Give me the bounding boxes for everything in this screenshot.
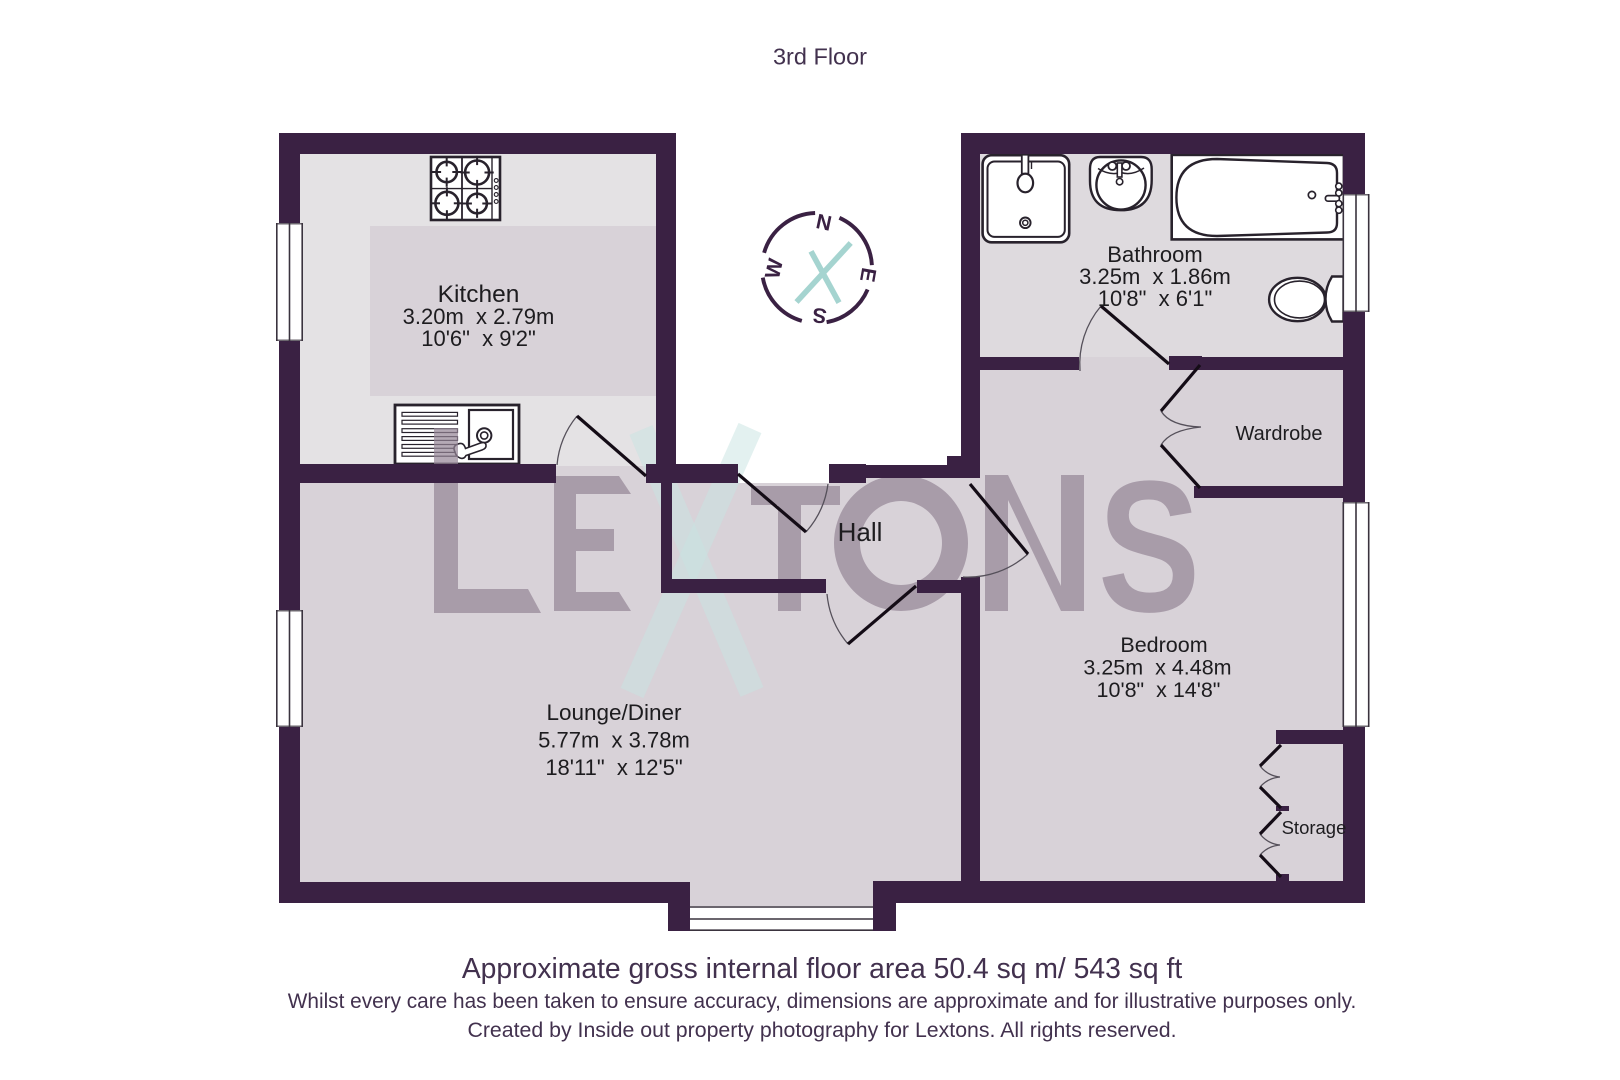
- svg-text:S: S: [811, 303, 828, 328]
- svg-text:3.25m x 4.48m: 3.25m x 4.48m: [1083, 656, 1231, 680]
- svg-text:3rd Floor: 3rd Floor: [773, 44, 867, 70]
- svg-text:W: W: [761, 256, 788, 281]
- svg-text:Created by Inside out property: Created by Inside out property photograp…: [467, 1018, 1176, 1042]
- svg-text:E: E: [855, 266, 880, 284]
- svg-text:S: S: [1098, 443, 1200, 652]
- svg-text:Storage: Storage: [1282, 817, 1347, 838]
- svg-text:10'6" x 9'2": 10'6" x 9'2": [421, 326, 536, 351]
- svg-text:10'8" x 14'8": 10'8" x 14'8": [1097, 678, 1221, 702]
- svg-text:Hall: Hall: [838, 517, 883, 547]
- svg-text:Wardrobe: Wardrobe: [1235, 423, 1322, 445]
- svg-text:Bedroom: Bedroom: [1120, 633, 1207, 657]
- svg-text:18'11" x 12'5": 18'11" x 12'5": [545, 755, 682, 780]
- svg-text:N: N: [814, 210, 834, 236]
- svg-text:Approximate gross internal flo: Approximate gross internal floor area 50…: [462, 952, 1183, 984]
- svg-text:Whilst every care has been tak: Whilst every care has been taken to ensu…: [288, 990, 1357, 1013]
- svg-text:10'8" x 6'1": 10'8" x 6'1": [1098, 286, 1213, 311]
- svg-text:5.77m x 3.78m: 5.77m x 3.78m: [538, 728, 690, 753]
- svg-text:Lounge/Diner: Lounge/Diner: [546, 700, 682, 725]
